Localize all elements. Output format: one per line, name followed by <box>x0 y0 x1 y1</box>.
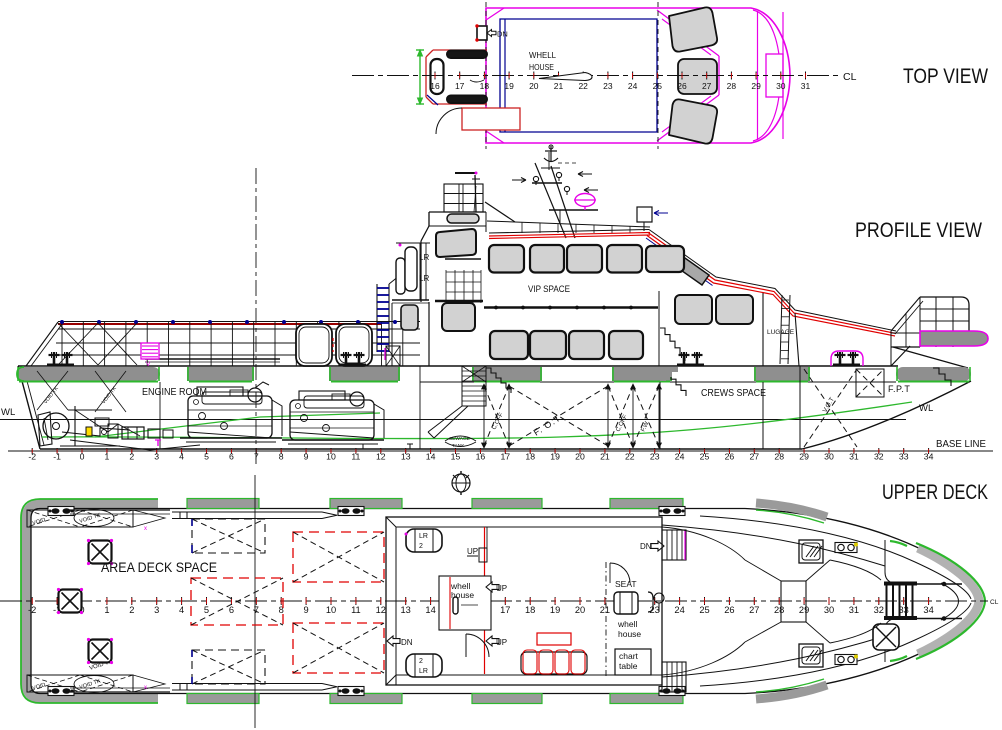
svg-text:26: 26 <box>677 81 687 91</box>
svg-text:14: 14 <box>426 452 436 462</box>
svg-text:13: 13 <box>401 605 411 615</box>
svg-text:TOP VIEW: TOP VIEW <box>903 65 988 88</box>
svg-text:27: 27 <box>749 605 759 615</box>
svg-text:20: 20 <box>575 605 585 615</box>
svg-text:AREA DECK SPACE: AREA DECK SPACE <box>101 559 217 575</box>
svg-text:31: 31 <box>849 452 859 462</box>
svg-text:20: 20 <box>575 452 585 462</box>
svg-text:2: 2 <box>419 658 423 665</box>
svg-text:32: 32 <box>874 605 884 615</box>
svg-text:F.P.T: F.P.T <box>888 384 910 394</box>
svg-text:TANK: TANK <box>452 443 465 449</box>
svg-text:DN: DN <box>640 542 652 551</box>
svg-text:WL: WL <box>919 403 933 414</box>
svg-text:28: 28 <box>774 605 784 615</box>
svg-text:LR: LR <box>419 253 429 262</box>
svg-text:17: 17 <box>500 452 510 462</box>
svg-text:LR: LR <box>419 668 428 675</box>
svg-text:30: 30 <box>824 605 834 615</box>
svg-text:34: 34 <box>923 605 933 615</box>
svg-text:29: 29 <box>751 81 761 91</box>
svg-text:9: 9 <box>304 605 309 615</box>
svg-text:21: 21 <box>554 81 564 91</box>
svg-text:VIP SPACE: VIP SPACE <box>528 284 570 294</box>
svg-text:4: 4 <box>179 452 184 462</box>
svg-text:2: 2 <box>129 605 134 615</box>
svg-text:table: table <box>619 661 638 671</box>
svg-text:10: 10 <box>326 605 336 615</box>
svg-text:12: 12 <box>376 452 386 462</box>
svg-text:UP: UP <box>496 638 507 647</box>
svg-text:34: 34 <box>924 452 934 462</box>
svg-text:18: 18 <box>480 81 490 91</box>
svg-text:V: V <box>146 361 151 368</box>
svg-text:25: 25 <box>653 81 663 91</box>
svg-text:15: 15 <box>451 452 461 462</box>
svg-text:9: 9 <box>304 452 309 462</box>
svg-text:32: 32 <box>874 452 884 462</box>
svg-text:17: 17 <box>500 605 510 615</box>
svg-text:SEWAGE: SEWAGE <box>449 436 470 442</box>
svg-text:18: 18 <box>525 605 535 615</box>
svg-text:CL: CL <box>843 71 857 83</box>
svg-text:1: 1 <box>104 605 109 615</box>
svg-text:25: 25 <box>699 605 709 615</box>
svg-text:0: 0 <box>80 452 85 462</box>
svg-text:19: 19 <box>550 605 560 615</box>
svg-text:23: 23 <box>650 605 660 615</box>
svg-text:22: 22 <box>578 81 588 91</box>
svg-text:25: 25 <box>700 452 710 462</box>
svg-text:HOUSE: HOUSE <box>529 62 554 72</box>
svg-text:UP: UP <box>496 584 507 593</box>
svg-text:3: 3 <box>154 452 159 462</box>
svg-text:UPPER DECK: UPPER DECK <box>882 481 988 504</box>
svg-text:11: 11 <box>351 605 361 615</box>
svg-text:26: 26 <box>725 452 735 462</box>
svg-text:-2: -2 <box>28 452 36 462</box>
svg-text:WL: WL <box>1 407 15 418</box>
svg-text:29: 29 <box>799 452 809 462</box>
svg-text:33: 33 <box>899 452 909 462</box>
svg-text:6: 6 <box>229 605 234 615</box>
svg-text:21: 21 <box>600 452 610 462</box>
svg-text:28: 28 <box>774 452 784 462</box>
svg-text:x: x <box>144 526 147 532</box>
svg-text:31: 31 <box>801 81 811 91</box>
svg-text:17: 17 <box>455 81 465 91</box>
svg-text:10: 10 <box>326 452 336 462</box>
svg-text:19: 19 <box>550 452 560 462</box>
svg-text:28: 28 <box>727 81 737 91</box>
svg-text:21: 21 <box>600 605 610 615</box>
svg-text:SEAT: SEAT <box>615 579 637 589</box>
svg-text:24: 24 <box>628 81 638 91</box>
svg-text:31: 31 <box>849 605 859 615</box>
svg-text:5: 5 <box>204 452 209 462</box>
svg-text:23: 23 <box>650 452 660 462</box>
svg-text:6: 6 <box>229 452 234 462</box>
svg-text:CL: CL <box>990 599 999 606</box>
svg-text:23: 23 <box>603 81 613 91</box>
svg-text:4: 4 <box>179 605 184 615</box>
svg-text:3: 3 <box>154 605 159 615</box>
svg-text:24: 24 <box>675 452 685 462</box>
svg-text:16: 16 <box>430 81 440 91</box>
svg-text:WHELL: WHELL <box>529 50 556 60</box>
svg-text:20: 20 <box>529 81 539 91</box>
svg-text:whell: whell <box>617 619 637 629</box>
svg-text:29: 29 <box>799 605 809 615</box>
svg-text:19: 19 <box>504 81 514 91</box>
svg-text:30: 30 <box>824 452 834 462</box>
svg-text:13: 13 <box>401 452 411 462</box>
svg-text:2: 2 <box>129 452 134 462</box>
svg-text:12: 12 <box>376 605 386 615</box>
svg-text:27: 27 <box>749 452 759 462</box>
svg-text:-2: -2 <box>28 605 36 615</box>
svg-text:22: 22 <box>625 452 635 462</box>
svg-text:house: house <box>618 629 641 639</box>
svg-text:CREWS SPACE: CREWS SPACE <box>701 388 766 399</box>
svg-text:BASE LINE: BASE LINE <box>936 439 986 450</box>
svg-text:27: 27 <box>702 81 712 91</box>
svg-text:UP: UP <box>467 547 478 556</box>
svg-text:26: 26 <box>724 605 734 615</box>
svg-text:18: 18 <box>525 452 535 462</box>
svg-text:DN: DN <box>497 30 508 39</box>
svg-text:LR: LR <box>419 533 428 540</box>
svg-text:DN: DN <box>401 638 413 647</box>
svg-text:8: 8 <box>279 452 284 462</box>
svg-text:x: x <box>144 685 147 691</box>
svg-text:24: 24 <box>674 605 684 615</box>
svg-text:PROFILE VIEW: PROFILE VIEW <box>855 219 982 242</box>
svg-text:11: 11 <box>351 452 360 462</box>
svg-text:1: 1 <box>104 452 109 462</box>
svg-text:LR: LR <box>419 274 429 283</box>
svg-text:chart: chart <box>619 651 639 661</box>
svg-text:14: 14 <box>425 605 435 615</box>
svg-text:5: 5 <box>204 605 209 615</box>
svg-text:-1: -1 <box>53 452 61 462</box>
svg-text:30: 30 <box>776 81 786 91</box>
svg-text:2: 2 <box>419 543 423 550</box>
svg-text:16: 16 <box>476 452 486 462</box>
